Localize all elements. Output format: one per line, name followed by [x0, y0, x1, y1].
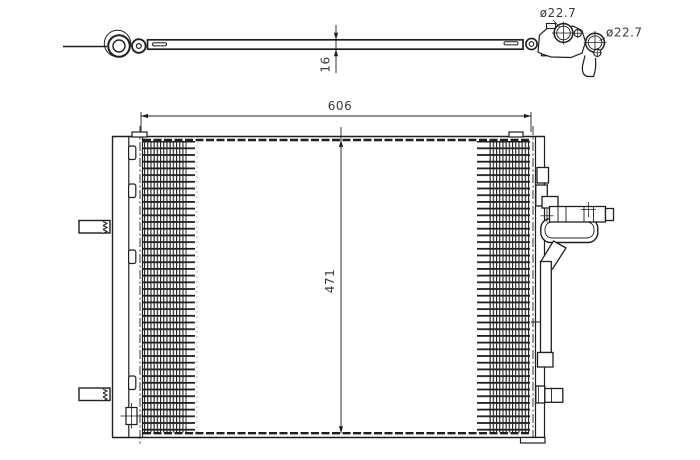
lower-connector-cylinder — [545, 389, 563, 403]
drier-pipe-end-block — [538, 353, 554, 368]
left-header-slots — [129, 146, 136, 390]
width-label: 606 — [328, 99, 352, 113]
top-tab-left — [132, 132, 147, 137]
port-bracket-hook — [582, 56, 595, 77]
left-tube-extension — [187, 141, 196, 433]
left-bracket-upper — [79, 221, 110, 234]
width-dimension: 606 — [141, 99, 531, 132]
top-view-profile-bar — [148, 40, 524, 49]
right-fin-zone — [488, 141, 530, 433]
left-pipe-ring-outer — [108, 35, 130, 57]
bottom-right-foot — [521, 438, 546, 444]
technical-drawing-page: ø22.7 ø22.7 16 606 — [0, 0, 700, 460]
lower-connector-flange — [536, 386, 545, 403]
height-label: 471 — [323, 269, 337, 293]
depth-label: 16 — [319, 56, 333, 72]
drier-pipe — [541, 262, 552, 353]
port-housing-cap — [547, 24, 556, 29]
right-tube-extension — [477, 141, 488, 433]
height-dimension: 471 — [323, 127, 343, 434]
top-tab-right — [509, 132, 523, 137]
port-top-diameter-label: ø22.7 — [540, 6, 577, 20]
left-fin-zone — [143, 141, 187, 433]
front-view — [79, 126, 614, 445]
bottom-left-pin-bracket — [121, 403, 143, 429]
top-view — [63, 22, 607, 77]
left-bracket-lower — [79, 388, 110, 401]
port-side-diameter-label: ø22.7 — [606, 26, 643, 40]
condenser-drawing: ø22.7 ø22.7 16 606 — [0, 0, 700, 460]
right-clamp-ring — [526, 38, 537, 49]
left-small-fitting — [132, 39, 146, 53]
right-fitting-assembly — [531, 168, 614, 404]
